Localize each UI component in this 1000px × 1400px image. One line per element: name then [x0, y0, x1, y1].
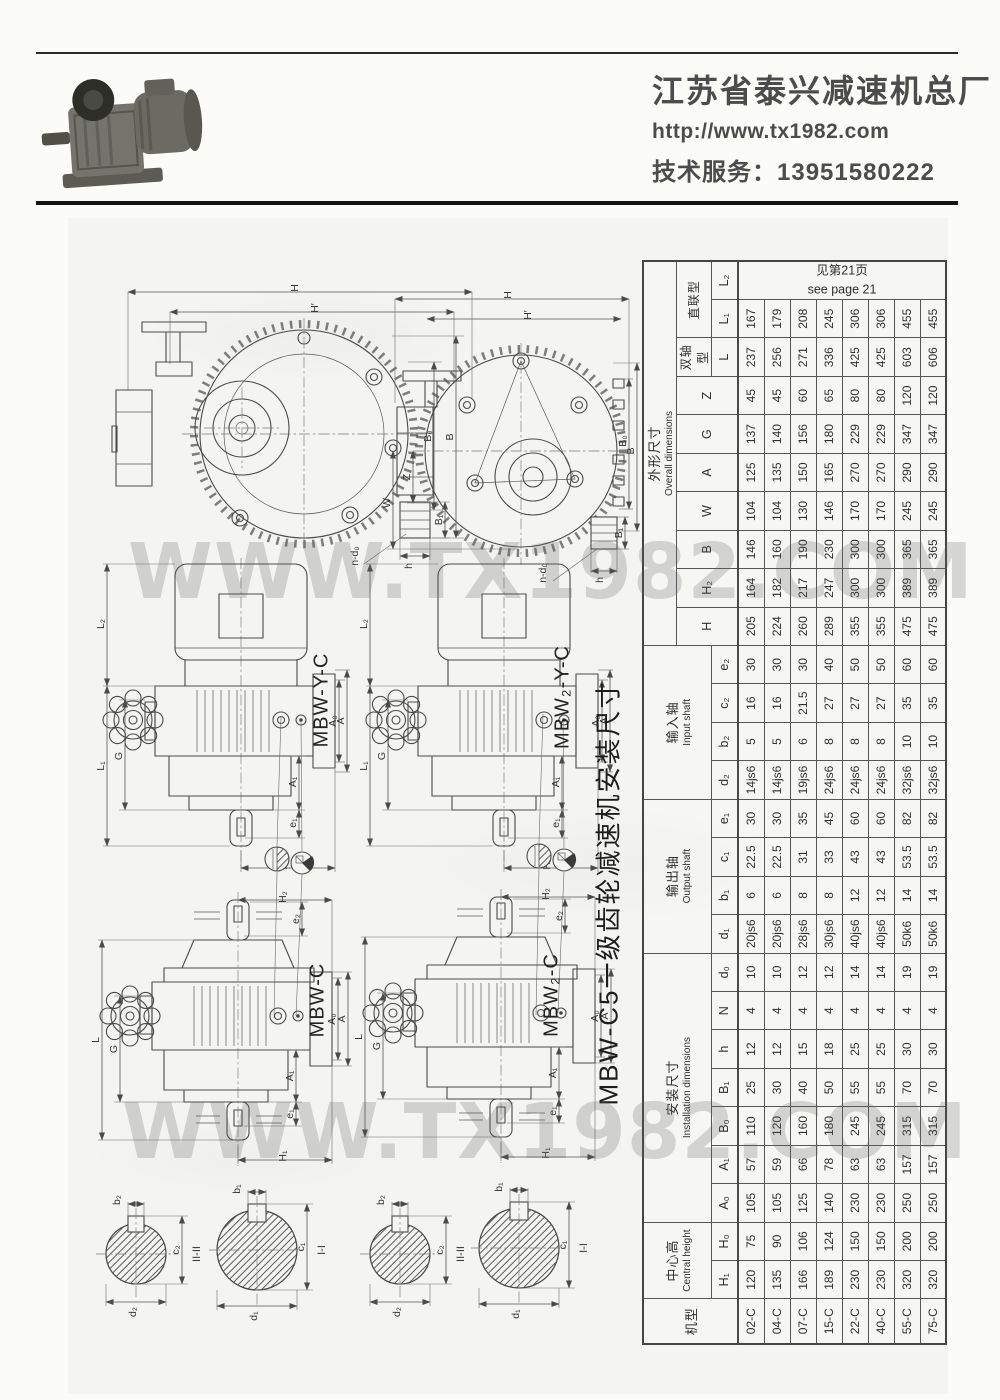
value-cell: 30 [894, 1030, 920, 1068]
value-cell: 63 [868, 1145, 894, 1183]
value-cell: 120 [894, 376, 920, 414]
value-cell: 247 [816, 569, 842, 607]
value-cell: 229 [842, 415, 868, 453]
value-cell: 250 [894, 1184, 920, 1222]
value-cell: 110 [738, 1107, 764, 1145]
value-cell: 270 [868, 453, 894, 491]
value-cell: 30 [790, 645, 816, 683]
value-cell: 105 [738, 1184, 764, 1222]
col-header-model: 机型 [643, 1299, 738, 1344]
dim-label: L₁ [358, 761, 370, 771]
value-cell: 22.5 [738, 838, 764, 876]
col-header: A₀ [711, 1184, 738, 1222]
value-cell: 347 [894, 415, 920, 453]
dim-label: b₂ [111, 1195, 123, 1205]
value-cell: 80 [868, 376, 894, 414]
dim-label: L₁ [95, 761, 107, 771]
dim-label: c₁ [295, 1242, 307, 1251]
value-cell: 425 [842, 338, 868, 376]
value-cell: 150 [790, 453, 816, 491]
value-cell: 475 [920, 607, 946, 645]
col-header: A₁ [711, 1145, 738, 1183]
value-cell: 208 [790, 300, 816, 338]
value-cell: 320 [894, 1261, 920, 1299]
value-cell: 21.5 [790, 684, 816, 722]
value-cell: 156 [790, 415, 816, 453]
value-cell: 256 [764, 338, 790, 376]
dim-label: H₂ [277, 891, 289, 903]
value-cell: 43 [842, 838, 868, 876]
section-view-II-1: b₂ c₂ d₂ II-II [86, 1190, 208, 1318]
dim-label: A₁ [284, 1070, 296, 1081]
value-cell: 260 [790, 607, 816, 645]
value-cell: 14js6 [764, 761, 790, 799]
value-cell: 70 [920, 1068, 946, 1106]
dim-label: L₂ [95, 619, 107, 629]
value-cell: 82 [894, 799, 920, 837]
value-cell: 140 [764, 415, 790, 453]
section-view-I-2: b₁ c₁ d₁ I-I [465, 1180, 595, 1320]
model-cell: 75-C [920, 1299, 946, 1344]
dim-label: L₂ [358, 619, 370, 629]
value-cell: 35 [920, 684, 946, 722]
dim-label: B₀ [617, 435, 629, 446]
value-cell: 355 [868, 607, 894, 645]
value-cell: 70 [894, 1068, 920, 1106]
value-cell: 170 [868, 492, 894, 530]
value-cell: 157 [920, 1145, 946, 1183]
value-cell: 31 [790, 838, 816, 876]
value-cell: 32js6 [920, 761, 946, 799]
drawing-mbw2-c: H₂ e₂ A₀ A L G A₁ e₁ H₁ [355, 885, 617, 1185]
value-cell: 19 [894, 953, 920, 991]
value-cell: 14 [920, 876, 946, 914]
value-cell: 78 [816, 1145, 842, 1183]
value-cell: 170 [842, 492, 868, 530]
value-cell: 606 [920, 338, 946, 376]
value-cell: 24js6 [868, 761, 894, 799]
value-cell: 30 [764, 799, 790, 837]
dim-label: e₁ [284, 1109, 296, 1119]
value-cell: 125 [738, 453, 764, 491]
value-cell: 14 [868, 953, 894, 991]
value-cell: 365 [920, 530, 946, 568]
subgroup-direct-coupled: 直联型 [676, 261, 711, 338]
dim-label: Z [401, 473, 413, 480]
value-cell: 160 [764, 530, 790, 568]
company-website: http://www.tx1982.com [652, 120, 958, 144]
value-cell: 8 [868, 722, 894, 760]
value-cell: 60 [894, 645, 920, 683]
group-central-height: 中心高Central height [643, 1222, 711, 1299]
value-cell: 200 [920, 1222, 946, 1260]
value-cell: 16 [738, 684, 764, 722]
value-cell: 59 [764, 1145, 790, 1183]
see-page-cell: 见第21页see page 21 [738, 261, 946, 300]
value-cell: 130 [790, 492, 816, 530]
value-cell: 8 [842, 722, 868, 760]
value-cell: 205 [738, 607, 764, 645]
value-cell: 40js6 [842, 915, 868, 953]
value-cell: 90 [764, 1222, 790, 1260]
value-cell: 40 [790, 1068, 816, 1106]
group-output-shaft: 输出轴Output shaft [643, 799, 711, 953]
value-cell: 14 [894, 876, 920, 914]
dim-label: H [502, 291, 514, 299]
value-cell: 4 [738, 991, 764, 1029]
value-cell: 365 [894, 530, 920, 568]
dim-label: L [90, 1037, 102, 1043]
value-cell: 320 [920, 1261, 946, 1299]
value-cell: 10 [738, 953, 764, 991]
dim-label: b₁ [493, 1182, 505, 1192]
label-mbw-y-c: MBW-Y-C [311, 653, 334, 748]
dim-label: B₁ [613, 527, 625, 538]
value-cell: 245 [816, 300, 842, 338]
dim-label: G [108, 1045, 120, 1053]
value-cell: 140 [816, 1184, 842, 1222]
value-cell: 180 [816, 415, 842, 453]
dim-label: d₁ [248, 1311, 260, 1321]
value-cell: 15 [790, 1030, 816, 1068]
value-cell: 16 [764, 684, 790, 722]
value-cell: 237 [738, 338, 764, 376]
value-cell: 18 [816, 1030, 842, 1068]
value-cell: 290 [920, 453, 946, 491]
dim-label: H′ [309, 303, 321, 313]
col-header: B₁ [711, 1068, 738, 1106]
value-cell: 106 [790, 1222, 816, 1260]
value-cell: 120 [920, 376, 946, 414]
value-cell: 6 [738, 876, 764, 914]
value-cell: 124 [816, 1222, 842, 1260]
group-input-shaft: 输入轴Input shaft [643, 645, 711, 799]
value-cell: 150 [868, 1222, 894, 1260]
value-cell: 200 [894, 1222, 920, 1260]
value-cell: 120 [738, 1261, 764, 1299]
value-cell: 150 [842, 1222, 868, 1260]
value-cell: 19js6 [790, 761, 816, 799]
value-cell: 306 [842, 300, 868, 338]
value-cell: 53.5 [920, 838, 946, 876]
value-cell: 24js6 [842, 761, 868, 799]
dim-label: d₁ [510, 1309, 522, 1319]
value-cell: 12 [790, 953, 816, 991]
section-label: II-II [191, 1246, 203, 1262]
model-cell: 40-C [868, 1299, 894, 1344]
col-header: L₁ [711, 300, 738, 338]
col-header: N [711, 991, 738, 1029]
value-cell: 104 [738, 492, 764, 530]
value-cell: 22.5 [764, 838, 790, 876]
value-cell: 30 [764, 645, 790, 683]
value-cell: 230 [868, 1184, 894, 1222]
col-header: B [676, 530, 738, 568]
value-cell: 6 [790, 722, 816, 760]
value-cell: 50k6 [894, 915, 920, 953]
value-cell: 12 [738, 1030, 764, 1068]
value-cell: 50 [868, 645, 894, 683]
value-cell: 10 [764, 953, 790, 991]
value-cell: 40js6 [868, 915, 894, 953]
dim-label: H₁ [540, 1147, 552, 1159]
value-cell: 4 [842, 991, 868, 1029]
value-cell: 389 [920, 569, 946, 607]
col-header: W [676, 492, 738, 530]
value-cell: 229 [868, 415, 894, 453]
section-label: I-I [316, 1245, 328, 1255]
value-cell: 336 [816, 338, 842, 376]
dim-label: c₂ [434, 1245, 446, 1254]
dim-label: B [625, 447, 637, 454]
value-cell: 60 [920, 645, 946, 683]
value-cell: 45 [816, 799, 842, 837]
logo-photo [36, 58, 211, 198]
value-cell: 300 [868, 530, 894, 568]
value-cell: 50 [816, 1068, 842, 1106]
col-header: Z [676, 376, 738, 414]
value-cell: 40 [816, 645, 842, 683]
model-cell: 04-C [764, 1299, 790, 1344]
label-mbw2-c: MBW₂-C [541, 953, 564, 1037]
value-cell: 290 [894, 453, 920, 491]
dim-label: H′ [522, 310, 534, 320]
value-cell: 146 [738, 530, 764, 568]
model-cell: 02-C [738, 1299, 764, 1344]
value-cell: 10 [894, 722, 920, 760]
col-header: d₁ [711, 915, 738, 953]
dim-label: e₂ [553, 911, 565, 921]
value-cell: 224 [764, 607, 790, 645]
value-cell: 50k6 [920, 915, 946, 953]
dim-label: d₂ [391, 1307, 403, 1317]
value-cell: 5 [738, 722, 764, 760]
dim-label: H₁ [277, 1150, 289, 1162]
model-cell: 55-C [894, 1299, 920, 1344]
col-header: B₀ [711, 1107, 738, 1145]
drawing-front-view-2: H H′ Z W B₀ B B₁ h n-d₀ [383, 283, 641, 595]
value-cell: 82 [920, 799, 946, 837]
value-cell: 271 [790, 338, 816, 376]
value-cell: 4 [816, 991, 842, 1029]
dim-label: W [381, 498, 393, 508]
value-cell: 190 [790, 530, 816, 568]
value-cell: 6 [764, 876, 790, 914]
value-cell: 60 [790, 376, 816, 414]
value-cell: 300 [868, 569, 894, 607]
value-cell: 60 [868, 799, 894, 837]
col-header: H₀ [711, 1222, 738, 1260]
value-cell: 245 [842, 1107, 868, 1145]
col-header: A [676, 453, 738, 491]
value-cell: 603 [894, 338, 920, 376]
value-cell: 12 [868, 876, 894, 914]
model-cell: 07-C [790, 1299, 816, 1344]
value-cell: 189 [816, 1261, 842, 1299]
col-header: L₂ [711, 261, 738, 300]
value-cell: 137 [738, 415, 764, 453]
value-cell: 4 [920, 991, 946, 1029]
dim-label: H₂ [540, 888, 552, 900]
value-cell: 43 [868, 838, 894, 876]
col-header: H₂ [676, 569, 738, 607]
value-cell: 245 [894, 492, 920, 530]
group-overall-dimensions: 外形尺寸Overall dimensions [643, 261, 676, 646]
value-cell: 20js6 [738, 915, 764, 953]
dim-label: G [376, 752, 388, 760]
value-cell: 347 [920, 415, 946, 453]
value-cell: 57 [738, 1145, 764, 1183]
value-cell: 35 [790, 799, 816, 837]
value-cell: 12 [816, 953, 842, 991]
value-cell: 27 [842, 684, 868, 722]
dim-label: b₁ [231, 1184, 243, 1194]
value-cell: 455 [894, 300, 920, 338]
col-header: G [676, 415, 738, 453]
value-cell: 166 [790, 1261, 816, 1299]
value-cell: 230 [816, 530, 842, 568]
value-cell: 4 [764, 991, 790, 1029]
label-mbw-c: MBW-C [307, 963, 330, 1038]
value-cell: 12 [764, 1030, 790, 1068]
value-cell: 25 [868, 1030, 894, 1068]
label-mbw2-y-c: MBW₂-Y-C [552, 645, 575, 749]
value-cell: 55 [868, 1068, 894, 1106]
value-cell: 250 [920, 1184, 946, 1222]
value-cell: 33 [816, 838, 842, 876]
value-cell: 50 [842, 645, 868, 683]
value-cell: 60 [842, 799, 868, 837]
value-cell: 8 [816, 722, 842, 760]
col-header: b₁ [711, 876, 738, 914]
value-cell: 355 [842, 607, 868, 645]
dim-label: L [353, 1034, 365, 1040]
value-cell: 30 [738, 645, 764, 683]
value-cell: 35 [894, 684, 920, 722]
value-cell: 179 [764, 300, 790, 338]
dim-label: c₁ [557, 1240, 569, 1249]
value-cell: 27 [816, 684, 842, 722]
value-cell: 160 [790, 1107, 816, 1145]
value-cell: 8 [816, 876, 842, 914]
col-header: b₂ [711, 722, 738, 760]
drawing-mbw-c: H₂ e₂ A₀ A L G A₁ e₁ H₁ [92, 888, 354, 1188]
col-header: e₁ [711, 799, 738, 837]
value-cell: 12 [842, 876, 868, 914]
service-phone: 技术服务：13951580222 [652, 152, 958, 187]
value-cell: 19 [920, 953, 946, 991]
value-cell: 306 [868, 300, 894, 338]
value-cell: 146 [816, 492, 842, 530]
col-header: e₂ [711, 645, 738, 683]
dim-label: G [371, 1042, 383, 1050]
dimension-table-rotated: 机型 中心高Central height 安装尺寸Installation di… [642, 262, 933, 1345]
group-installation-dimensions: 安装尺寸Installation dimensions [643, 953, 711, 1222]
value-cell: 4 [790, 991, 816, 1029]
value-cell: 315 [920, 1107, 946, 1145]
value-cell: 125 [790, 1184, 816, 1222]
value-cell: 217 [790, 569, 816, 607]
value-cell: 53.5 [894, 838, 920, 876]
value-cell: 180 [816, 1107, 842, 1145]
value-cell: 230 [842, 1184, 868, 1222]
value-cell: 300 [842, 569, 868, 607]
value-cell: 425 [868, 338, 894, 376]
col-header: c₁ [711, 838, 738, 876]
value-cell: 30 [764, 1068, 790, 1106]
value-cell: 245 [920, 492, 946, 530]
value-cell: 165 [816, 453, 842, 491]
dim-label: c₂ [170, 1245, 182, 1254]
value-cell: 65 [816, 376, 842, 414]
value-cell: 104 [764, 492, 790, 530]
value-cell: 167 [738, 300, 764, 338]
dim-label: e₂ [290, 914, 302, 924]
value-cell: 135 [764, 1261, 790, 1299]
value-cell: 300 [842, 530, 868, 568]
col-header: H₁ [711, 1261, 738, 1299]
value-cell: 75 [738, 1222, 764, 1260]
dim-label: H [289, 284, 301, 292]
value-cell: 315 [894, 1107, 920, 1145]
value-cell: 4 [894, 991, 920, 1029]
value-cell: 4 [868, 991, 894, 1029]
company-name: 江苏省泰兴减速机总厂 [652, 66, 958, 112]
value-cell: 164 [738, 569, 764, 607]
value-cell: 28js6 [790, 915, 816, 953]
value-cell: 8 [790, 876, 816, 914]
value-cell: 14js6 [738, 761, 764, 799]
value-cell: 455 [920, 300, 946, 338]
value-cell: 105 [764, 1184, 790, 1222]
value-cell: 120 [764, 1107, 790, 1145]
section-view-II-2: b₂ c₂ d₂ II-II [350, 1190, 472, 1318]
dim-label: A₁ [547, 1067, 559, 1078]
dims-table: 机型 中心高Central height 安装尺寸Installation di… [642, 260, 947, 1345]
vertical-title: MBW-C5一级齿轮减速机安装尺寸 [589, 681, 626, 1106]
value-cell: 135 [764, 453, 790, 491]
dim-label: e₁ [547, 1106, 559, 1116]
section-label: I-I [578, 1243, 590, 1253]
value-cell: 63 [842, 1145, 868, 1183]
bottom-rule [36, 201, 958, 205]
value-cell: 230 [868, 1261, 894, 1299]
value-cell: 270 [842, 453, 868, 491]
col-header: L [711, 338, 738, 376]
dim-label: G [113, 752, 125, 760]
col-header: c₂ [711, 684, 738, 722]
col-header: H [676, 607, 738, 645]
top-rule [36, 52, 958, 54]
value-cell: 27 [868, 684, 894, 722]
value-cell: 45 [738, 376, 764, 414]
value-cell: 55 [842, 1068, 868, 1106]
value-cell: 25 [738, 1068, 764, 1106]
value-cell: 25 [842, 1030, 868, 1068]
subgroup-double-shaft: 双轴型 [676, 338, 711, 376]
value-cell: 30 [920, 1030, 946, 1068]
value-cell: 289 [816, 607, 842, 645]
value-cell: 5 [764, 722, 790, 760]
dim-label: d₂ [127, 1307, 139, 1317]
value-cell: 475 [894, 607, 920, 645]
value-cell: 182 [764, 569, 790, 607]
value-cell: 32js6 [894, 761, 920, 799]
value-cell: 66 [790, 1145, 816, 1183]
value-cell: 45 [764, 376, 790, 414]
value-cell: 30 [738, 799, 764, 837]
model-cell: 22-C [842, 1299, 868, 1344]
